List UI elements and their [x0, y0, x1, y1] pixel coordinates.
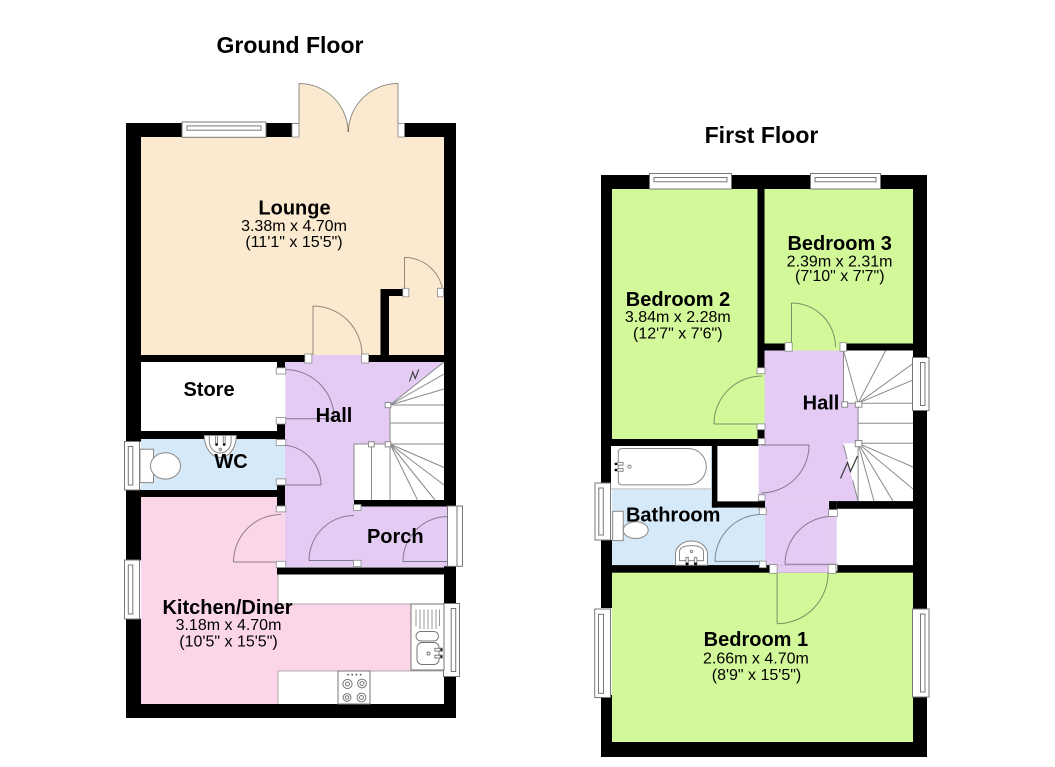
svg-text:Store: Store [183, 379, 234, 401]
svg-text:2.66m x 4.70m: 2.66m x 4.70m [703, 651, 809, 668]
svg-text:Bedroom 3: Bedroom 3 [787, 233, 891, 255]
svg-text:(10'5" x 15'5"): (10'5" x 15'5") [179, 633, 277, 650]
svg-text:(12'7" x 7'6"): (12'7" x 7'6") [633, 326, 723, 343]
svg-text:WC: WC [214, 451, 247, 473]
svg-text:Porch: Porch [367, 526, 424, 548]
svg-text:3.84m x 2.28m: 3.84m x 2.28m [625, 309, 731, 326]
svg-text:(8'9" x 15'5"): (8'9" x 15'5") [712, 667, 802, 684]
svg-text:Bathroom: Bathroom [626, 505, 720, 527]
svg-text:Hall: Hall [316, 405, 353, 427]
svg-text:(7'10" x 7'7"): (7'10" x 7'7") [795, 268, 885, 285]
svg-text:3.18m x 4.70m: 3.18m x 4.70m [176, 617, 282, 634]
svg-text:(11'1" x 15'5"): (11'1" x 15'5") [245, 234, 342, 251]
svg-text:Bedroom 2: Bedroom 2 [626, 289, 730, 311]
svg-text:Bedroom 1: Bedroom 1 [704, 629, 808, 651]
svg-text:Kitchen/Diner: Kitchen/Diner [162, 597, 292, 619]
svg-text:First Floor: First Floor [705, 122, 819, 148]
svg-text:3.38m x 4.70m: 3.38m x 4.70m [241, 218, 347, 235]
svg-text:Hall: Hall [803, 393, 840, 415]
svg-text:Lounge: Lounge [258, 198, 330, 220]
svg-text:Ground Floor: Ground Floor [217, 32, 364, 58]
